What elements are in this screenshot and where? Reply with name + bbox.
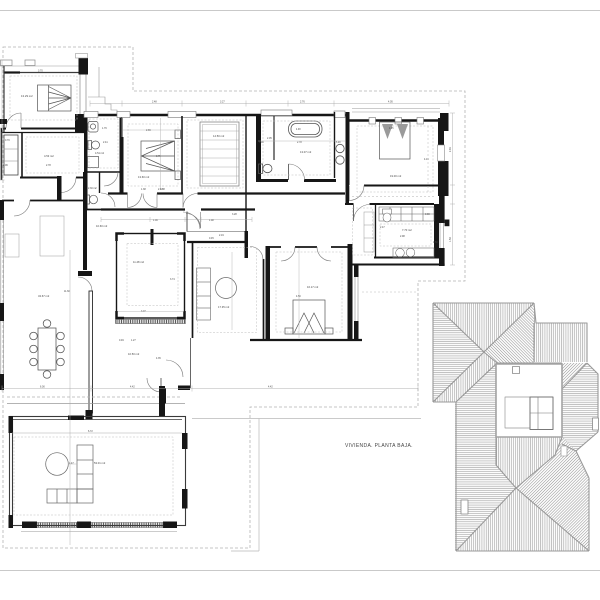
svg-text:13.60 m2: 13.60 m2 bbox=[138, 175, 150, 179]
svg-text:2.48: 2.48 bbox=[152, 101, 157, 104]
svg-text:2.30 m2: 2.30 m2 bbox=[88, 187, 97, 190]
svg-text:11.48 m2: 11.48 m2 bbox=[133, 260, 145, 264]
svg-text:7.70 m2: 7.70 m2 bbox=[402, 228, 412, 232]
svg-text:4.42: 4.42 bbox=[268, 386, 273, 389]
svg-text:3.74: 3.74 bbox=[170, 278, 175, 281]
svg-text:1.50: 1.50 bbox=[433, 241, 438, 244]
svg-text:1.76: 1.76 bbox=[102, 127, 107, 130]
svg-text:4.35: 4.35 bbox=[156, 357, 161, 360]
svg-text:17.35 m2: 17.35 m2 bbox=[218, 305, 230, 309]
svg-text:11.60: 11.60 bbox=[64, 290, 70, 293]
svg-text:1.27: 1.27 bbox=[131, 339, 136, 342]
svg-text:VIVIENDA. PLANTA BAJA.: VIVIENDA. PLANTA BAJA. bbox=[345, 443, 413, 449]
svg-text:16.17 m2: 16.17 m2 bbox=[307, 285, 319, 289]
svg-text:43.67 m2: 43.67 m2 bbox=[38, 294, 50, 298]
svg-text:4.05: 4.05 bbox=[389, 128, 394, 130]
svg-text:13.29 m2: 13.29 m2 bbox=[21, 94, 33, 98]
svg-text:1.38: 1.38 bbox=[141, 188, 146, 191]
svg-text:53.01 m2: 53.01 m2 bbox=[94, 461, 106, 465]
svg-text:1.00: 1.00 bbox=[259, 141, 264, 144]
svg-text:2.41: 2.41 bbox=[103, 141, 108, 144]
svg-text:2.47: 2.47 bbox=[380, 226, 385, 229]
svg-text:2.76: 2.76 bbox=[300, 101, 305, 104]
svg-text:4.53 m2: 4.53 m2 bbox=[44, 154, 54, 158]
svg-text:4.51 m2: 4.51 m2 bbox=[95, 152, 105, 155]
svg-text:2.78: 2.78 bbox=[46, 164, 51, 167]
svg-text:0.45: 0.45 bbox=[209, 237, 214, 240]
svg-text:2.19: 2.19 bbox=[219, 234, 224, 237]
svg-text:10.60 m2: 10.60 m2 bbox=[96, 224, 108, 228]
svg-text:3.27: 3.27 bbox=[220, 101, 225, 104]
svg-text:4.16: 4.16 bbox=[424, 158, 429, 161]
svg-text:0.49: 0.49 bbox=[119, 339, 124, 342]
svg-text:6.00: 6.00 bbox=[40, 386, 45, 389]
svg-text:4.50: 4.50 bbox=[296, 295, 301, 298]
svg-text:2.89: 2.89 bbox=[146, 129, 151, 132]
svg-text:6.72: 6.72 bbox=[88, 430, 93, 433]
svg-text:14.50 m2: 14.50 m2 bbox=[213, 134, 225, 138]
svg-text:2.98: 2.98 bbox=[400, 235, 405, 238]
svg-text:0.70: 0.70 bbox=[5, 139, 10, 142]
svg-text:4.38: 4.38 bbox=[296, 129, 301, 131]
svg-text:2.06: 2.06 bbox=[3, 164, 8, 167]
svg-text:2.05: 2.05 bbox=[267, 137, 272, 140]
svg-text:1.50: 1.50 bbox=[449, 237, 452, 242]
svg-text:3.70: 3.70 bbox=[38, 70, 43, 73]
svg-text:1.08: 1.08 bbox=[160, 188, 165, 191]
svg-text:5.48: 5.48 bbox=[336, 142, 341, 144]
svg-text:4.42: 4.42 bbox=[130, 386, 135, 389]
svg-text:0.90: 0.90 bbox=[425, 213, 430, 216]
svg-text:2.46: 2.46 bbox=[449, 147, 452, 152]
svg-text:19.00 m2: 19.00 m2 bbox=[390, 174, 402, 178]
svg-text:3.28: 3.28 bbox=[232, 213, 237, 216]
svg-text:10.50 m2: 10.50 m2 bbox=[128, 352, 140, 356]
svg-text:4.05: 4.05 bbox=[388, 101, 393, 104]
svg-text:13.07 m2: 13.07 m2 bbox=[300, 150, 312, 154]
svg-text:2.78: 2.78 bbox=[297, 141, 302, 144]
